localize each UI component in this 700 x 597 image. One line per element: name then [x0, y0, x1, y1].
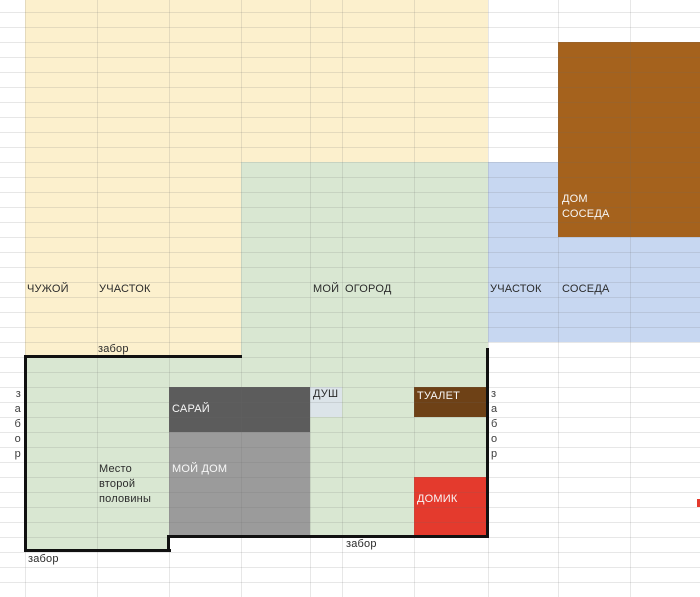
gridline-horizontal: [0, 582, 700, 583]
label-zabor-vertical-left[interactable]: з: [8, 387, 21, 402]
label-domik[interactable]: ДОМИК: [417, 492, 457, 507]
region-my-plot-ext[interactable]: [25, 537, 169, 551]
label-zabor-vertical-left[interactable]: р: [8, 447, 21, 462]
spreadsheet-canvas[interactable]: ЧУЖОЙУЧАСТОКМОЙОГОРОДУЧАСТОКСОСЕДАДОМСОС…: [0, 0, 700, 597]
label-ogorod[interactable]: ОГОРОД: [345, 282, 392, 297]
label-dush[interactable]: ДУШ: [313, 387, 338, 402]
label-soseda-2[interactable]: СОСЕДА: [562, 282, 610, 297]
label-zabor-bottom-left[interactable]: забор: [28, 552, 59, 567]
label-saray[interactable]: САРАЙ: [172, 402, 210, 417]
label-zabor-vertical-left[interactable]: а: [8, 402, 21, 417]
region-moy-dom[interactable]: [169, 432, 310, 537]
gridline-horizontal: [0, 552, 700, 553]
label-poloviny[interactable]: половины: [99, 492, 151, 507]
label-zabor-vertical-right[interactable]: б: [491, 417, 504, 432]
label-zabor-vertical-right[interactable]: о: [491, 432, 504, 447]
label-zabor-bottom-right[interactable]: забор: [346, 537, 377, 552]
label-zabor-vertical-right[interactable]: з: [491, 387, 504, 402]
label-uchastok-2[interactable]: УЧАСТОК: [490, 282, 542, 297]
label-zabor-vertical-left[interactable]: б: [8, 417, 21, 432]
label-zabor-vertical-right[interactable]: а: [491, 402, 504, 417]
region-moy-ogorod[interactable]: [241, 162, 488, 357]
label-tualet[interactable]: ТУАЛЕТ: [417, 389, 460, 404]
label-chuzhoy[interactable]: ЧУЖОЙ: [27, 282, 69, 297]
label-zabor-top[interactable]: забор: [98, 342, 129, 357]
label-zabor-vertical-right[interactable]: р: [491, 447, 504, 462]
label-uchastok[interactable]: УЧАСТОК: [99, 282, 151, 297]
label-zabor-vertical-left[interactable]: о: [8, 432, 21, 447]
label-moy-dom[interactable]: МОЙ ДОМ: [172, 462, 227, 477]
region-domik[interactable]: [414, 477, 488, 537]
label-mesto[interactable]: Место: [99, 462, 132, 477]
label-dom[interactable]: ДОМ: [562, 192, 588, 207]
label-vtoroy[interactable]: второй: [99, 477, 135, 492]
label-soseda[interactable]: СОСЕДА: [562, 207, 610, 222]
gridline-horizontal: [0, 567, 700, 568]
label-moy[interactable]: МОЙ: [313, 282, 339, 297]
